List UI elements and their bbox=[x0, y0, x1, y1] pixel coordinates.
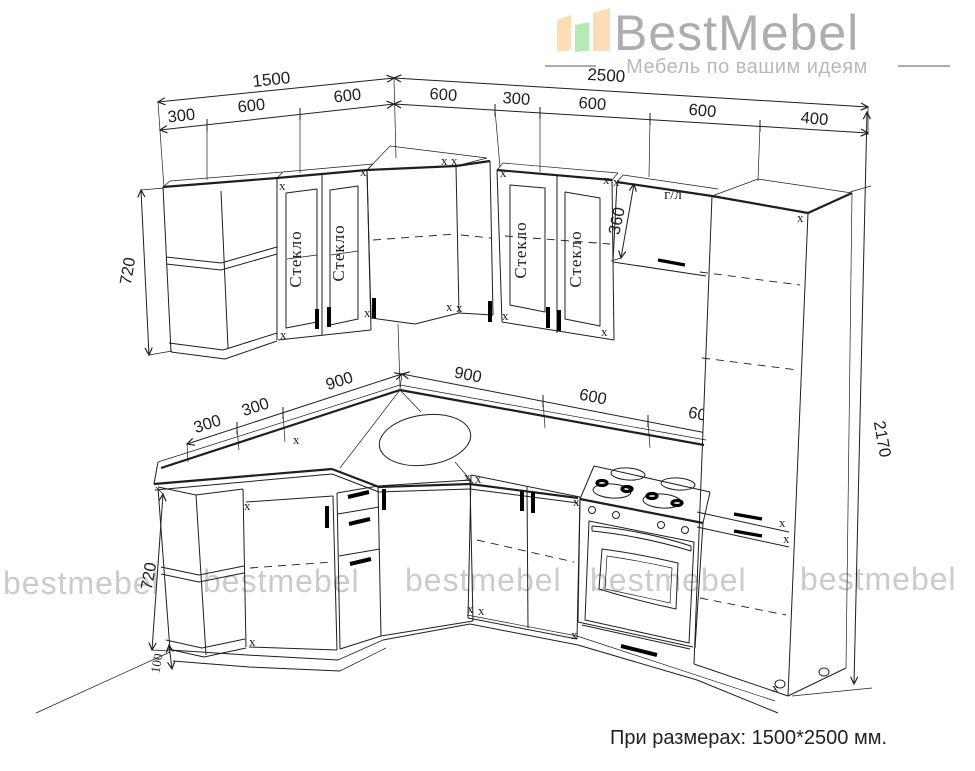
kitchen-scheme-page: 900 600 600 bestmebel bestmebel bestmebe… bbox=[0, 0, 975, 771]
footer-note: При размерах: 1500*2500 мм. bbox=[610, 727, 887, 749]
stove-knob bbox=[613, 512, 620, 519]
base-two-door-cabinet bbox=[468, 475, 580, 639]
svg-text:x: x bbox=[603, 172, 610, 187]
dim-right-seg-300: 300 bbox=[502, 89, 531, 109]
dim-left-seg-600a: 600 bbox=[237, 96, 266, 117]
stove bbox=[578, 466, 710, 655]
svg-text:x: x bbox=[601, 324, 608, 339]
svg-text:x: x bbox=[360, 164, 367, 179]
upper-glass-cabinet-right: Стекло Стекло bbox=[497, 163, 618, 340]
dim-right-seg-600c: 600 bbox=[688, 101, 717, 121]
dim-gas-lift-height: 360 bbox=[605, 183, 634, 261]
svg-text:x: x bbox=[779, 515, 786, 530]
dim-counter-left-900: 900 bbox=[324, 368, 356, 394]
svg-text:x: x bbox=[772, 680, 779, 695]
dim-wall-cabinet-height: 720 bbox=[117, 188, 172, 355]
svg-text:x: x bbox=[613, 174, 620, 189]
logo-wordmark: BestMebel bbox=[614, 5, 859, 61]
svg-text:x: x bbox=[249, 634, 256, 649]
logo-bar-mid-icon bbox=[575, 22, 589, 52]
dim-right-seg-400: 400 bbox=[800, 109, 829, 129]
watermark-text: bestmebel bbox=[800, 561, 957, 597]
stove-knob bbox=[682, 527, 689, 534]
glass-door-label: Стекло bbox=[329, 224, 348, 281]
svg-text:x: x bbox=[244, 498, 251, 513]
dim-left-wall-total: 1500 bbox=[252, 68, 292, 91]
watermark-text: bestmebel bbox=[203, 563, 360, 599]
upper-gas-lift-cabinet: г/л bbox=[613, 175, 718, 276]
svg-text:x: x bbox=[467, 601, 474, 616]
sink bbox=[376, 409, 474, 471]
countertop bbox=[154, 385, 706, 503]
glass-door-label: Стекло bbox=[566, 230, 585, 287]
svg-text:x: x bbox=[446, 299, 453, 314]
dim-left-seg-600b: 600 bbox=[333, 86, 362, 107]
tall-cabinet-silhouette bbox=[694, 179, 852, 696]
svg-text:x: x bbox=[478, 603, 485, 618]
watermark-text: bestmebel bbox=[3, 565, 160, 601]
stove-knob bbox=[658, 522, 665, 529]
dim-2170: 2170 bbox=[870, 419, 894, 458]
glass-door-label: Стекло bbox=[511, 221, 530, 278]
svg-text:x: x bbox=[797, 210, 804, 225]
svg-text:x: x bbox=[500, 165, 507, 180]
dim-left-seg-300: 300 bbox=[167, 106, 196, 127]
dim-upper-720: 720 bbox=[117, 256, 140, 286]
upper-corner-cabinet bbox=[367, 146, 493, 387]
svg-text:x: x bbox=[364, 305, 371, 320]
svg-text:x: x bbox=[451, 153, 458, 168]
dim-counter-left-300b: 300 bbox=[240, 394, 272, 420]
svg-text:x: x bbox=[475, 471, 482, 486]
burner bbox=[661, 477, 696, 491]
burner-cap bbox=[597, 481, 607, 486]
svg-text:x: x bbox=[279, 178, 286, 193]
svg-text:x: x bbox=[456, 300, 463, 315]
base-sink-cabinet bbox=[378, 480, 473, 636]
svg-text:x: x bbox=[573, 494, 580, 509]
dim-right-seg-600a: 600 bbox=[429, 85, 458, 105]
svg-text:x: x bbox=[293, 432, 300, 447]
watermark-text: bestmebel bbox=[405, 562, 562, 598]
glass-door-label: Стекло bbox=[286, 230, 305, 287]
stove-knob bbox=[589, 507, 596, 514]
logo-tagline: Мебель по вашим идеям bbox=[626, 56, 868, 78]
dim-counter-right-600a: 600 bbox=[578, 386, 608, 409]
svg-text:x: x bbox=[441, 153, 448, 168]
kitchen-line-drawing: 900 600 600 bestmebel bestmebel bestmebe… bbox=[0, 0, 975, 771]
svg-text:x: x bbox=[571, 627, 578, 642]
svg-text:x: x bbox=[783, 531, 790, 546]
logo-bar-left-icon bbox=[557, 15, 571, 52]
plinth-floor bbox=[36, 615, 778, 713]
dim-right-seg-600b: 600 bbox=[578, 94, 607, 114]
burner-cap bbox=[622, 487, 632, 492]
dim-counter-right-900: 900 bbox=[453, 364, 483, 387]
logo-bar-right-icon bbox=[593, 8, 610, 51]
dim-right-wall-total: 2500 bbox=[587, 65, 626, 86]
svg-text:x: x bbox=[280, 327, 287, 342]
dim-base-cabinet-height: 720 bbox=[138, 487, 170, 651]
burner-cap bbox=[647, 494, 657, 499]
upper-glass-cabinet-left: Стекло Стекло bbox=[277, 164, 373, 340]
svg-text:x: x bbox=[502, 308, 509, 323]
svg-text:x: x bbox=[464, 469, 471, 484]
upper-open-corner-shelf bbox=[163, 172, 283, 359]
burner-cap bbox=[672, 501, 682, 506]
gas-lift-label: г/л bbox=[664, 187, 682, 203]
